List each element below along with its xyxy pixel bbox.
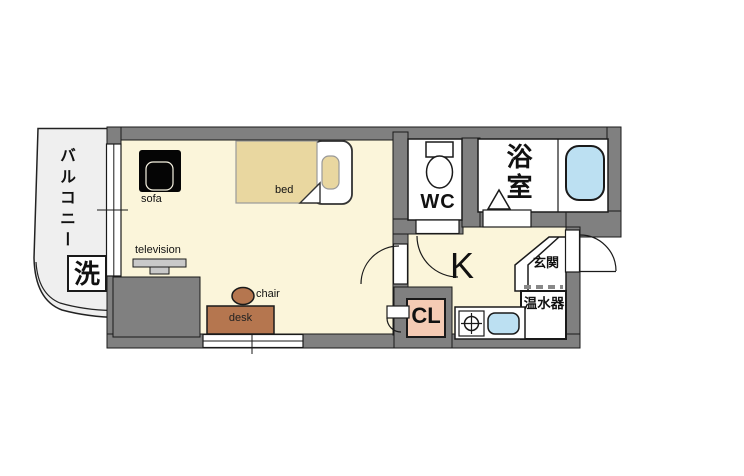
television — [133, 259, 186, 267]
wc-label: WC — [411, 192, 465, 212]
sofa-label: sofa — [141, 194, 162, 205]
sofa — [139, 150, 181, 192]
television-stand — [150, 267, 169, 274]
laundry-label: 洗 — [68, 261, 106, 287]
water-heater-label: 温水器 — [521, 297, 567, 311]
bed — [236, 141, 352, 204]
bathroom-label: 浴室 — [505, 143, 531, 203]
floor-plan-svg — [0, 0, 744, 476]
bathroom-door — [483, 210, 531, 227]
wall-top — [107, 127, 621, 140]
closet-label: CL — [407, 305, 445, 327]
bed-pillow — [322, 156, 339, 189]
kitchen-label: K — [438, 248, 486, 284]
balcony-label: バルコニー — [57, 147, 73, 252]
living-door-leaf — [394, 244, 408, 284]
bed-label: bed — [275, 185, 293, 196]
bathtub — [566, 146, 604, 200]
toilet-tank — [426, 142, 453, 157]
chair — [232, 288, 254, 305]
entrance-label: 玄関 — [524, 256, 568, 269]
desk-label: desk — [207, 313, 274, 324]
closet-door-leaf — [387, 306, 409, 318]
entrance-door-arc — [580, 235, 616, 271]
pillar-block — [113, 277, 200, 337]
chair-label: chair — [256, 289, 280, 300]
television-label: television — [135, 245, 181, 256]
wc-door-leaf — [416, 220, 459, 234]
toilet-bowl — [427, 156, 453, 188]
kitchen-sink — [488, 313, 519, 334]
floor-plan: バルコニー 洗 sofa bed television chair desk W… — [0, 0, 744, 476]
